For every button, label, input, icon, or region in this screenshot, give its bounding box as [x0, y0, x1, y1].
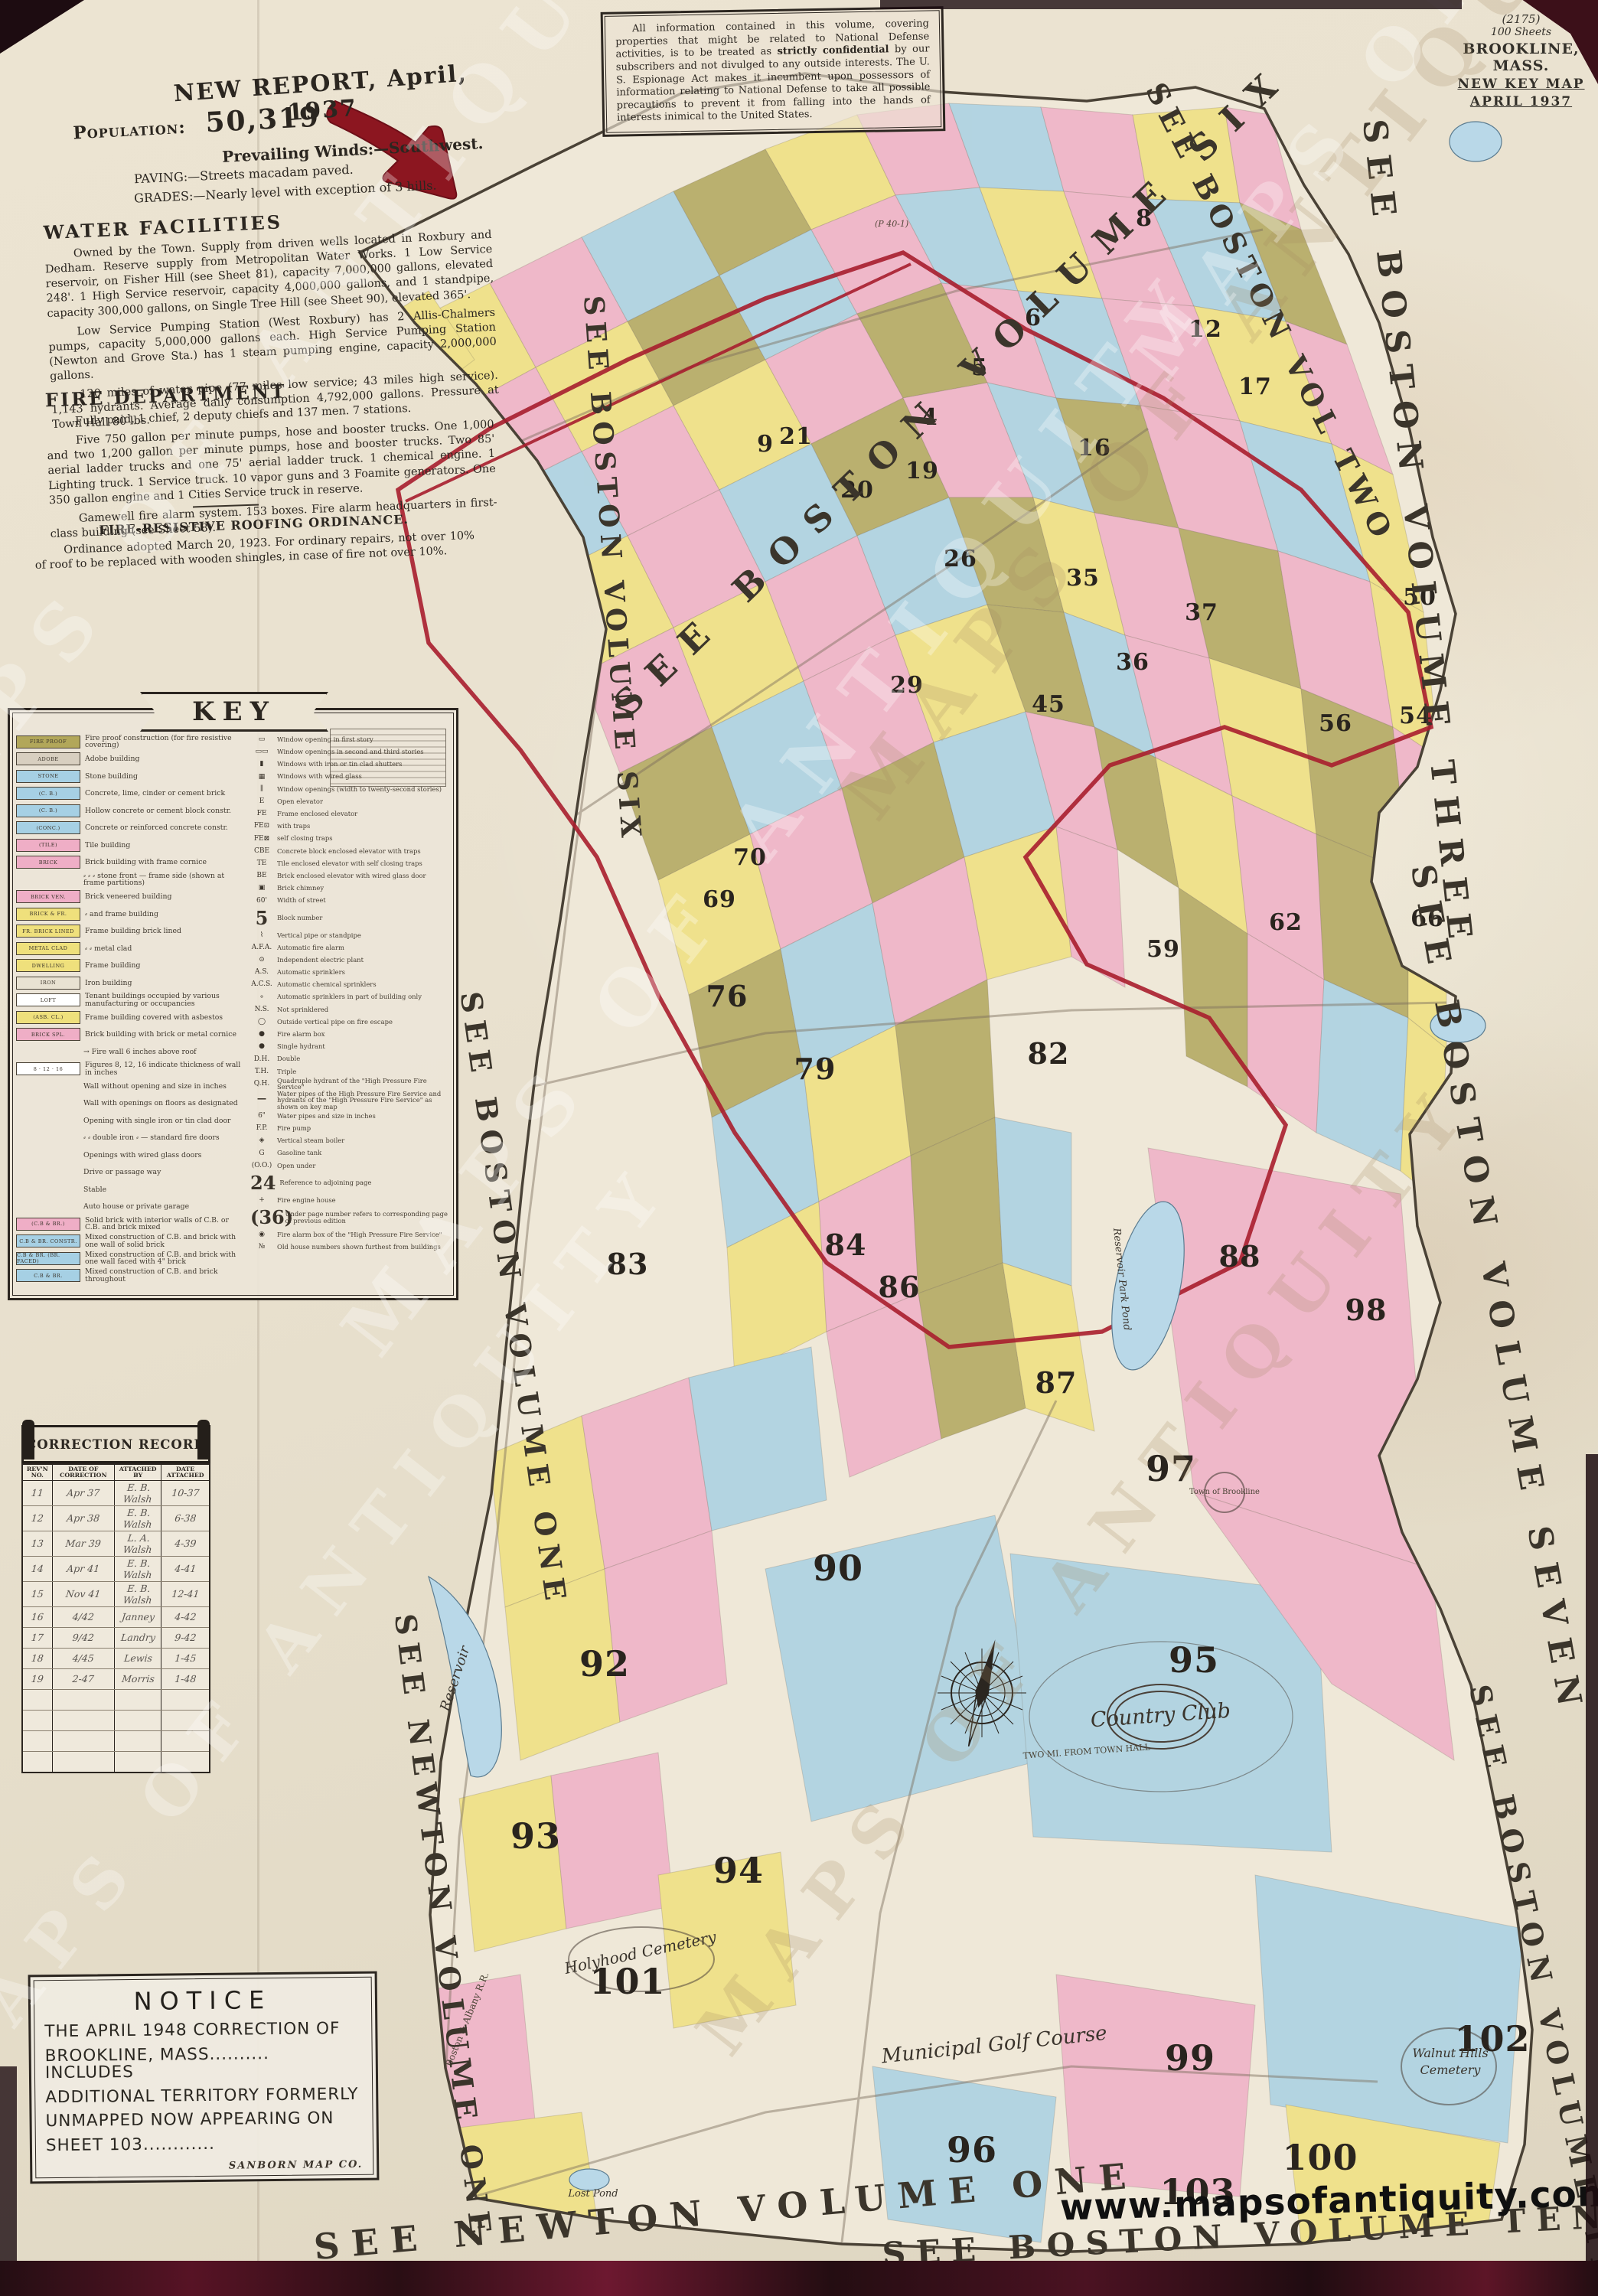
key-entry-label: Mixed construction of C.B. and brick thr… [85, 1268, 246, 1283]
key-symbol-entry: 6"Water pipes and size in inches [250, 1110, 448, 1122]
correction-cell: 12-41 [160, 1581, 211, 1606]
district-number: 37 [1185, 599, 1218, 626]
key-entry: (ASB. CL.)Frame building covered with as… [16, 1009, 246, 1026]
key-entry: BRICKBrick building with frame cornice [16, 854, 246, 872]
key-swatch: BRICK VEN. [16, 890, 80, 903]
key-entry: Stable [16, 1181, 246, 1199]
key-entry: Drive or passage way [16, 1164, 246, 1182]
key-right-column: ▭Window opening in first story▭▭Window o… [250, 733, 448, 1284]
correction-cell [51, 1710, 116, 1730]
key-symbol-entry: ●Fire alarm box [250, 1028, 448, 1040]
notice-line: SHEET 103............ [46, 2135, 363, 2155]
key-symbol-label: Brick chimney [277, 885, 324, 891]
key-swatch: BRICK & FR. [16, 908, 80, 921]
key-symbol-label: Width of street [277, 897, 326, 903]
correction-row: 12Apr 38E. B. Walsh6-38 [22, 1505, 210, 1531]
confidential-notice-text: All information contained in this volume… [615, 18, 931, 125]
key-symbol-icon: ● [250, 1030, 273, 1038]
key-swatch [16, 874, 79, 885]
key-title: KEY [140, 692, 328, 732]
key-symbol-entry: ◯Outside vertical pipe on fire escape [250, 1016, 448, 1028]
key-symbol-label: with traps [277, 823, 310, 829]
key-entry-label: Iron building [85, 980, 132, 987]
key-symbol-entry: (36)Under page number refers to correspo… [250, 1206, 448, 1228]
correction-cell: 4-42 [160, 1606, 210, 1627]
correction-cell: 1-45 [160, 1648, 210, 1668]
key-symbol-icon: FE⊠ [250, 835, 273, 843]
key-symbol-icon: 5 [250, 907, 273, 929]
correction-column-header: REV'N NO. [22, 1464, 52, 1480]
key-swatch: (C.B & BR.) [16, 1218, 80, 1231]
key-symbol-icon: ◈ [250, 1137, 273, 1144]
key-swatch [16, 1184, 79, 1195]
correction-row: 13Mar 39L. A. Walsh4-39 [22, 1531, 210, 1556]
key-swatch: FR. BRICK LINED [16, 925, 80, 938]
key-symbol-label: Gasoline tank [277, 1150, 321, 1156]
key-entry-label: Frame building covered with asbestos [85, 1014, 223, 1021]
key-entry-label: Tenant buildings occupied by various man… [85, 993, 246, 1007]
correction-row: 179/42Landry9-42 [22, 1627, 210, 1648]
key-entry-label: Adobe building [85, 755, 139, 762]
correction-cell: 19 [21, 1668, 54, 1689]
correction-cell: 4/45 [51, 1648, 116, 1668]
key-entry-label: ⸗ ⸗ ⸗ stone front — frame side (shown at… [83, 872, 246, 887]
key-symbol-icon: Q.H. [250, 1080, 273, 1088]
ornament-pillar-icon [22, 1420, 34, 1459]
correction-cell: 11 [21, 1480, 54, 1505]
key-swatch: (C. B.) [16, 804, 80, 817]
correction-record-header: CORRECTION RECORD [21, 1425, 210, 1463]
key-swatch: ADOBE [16, 752, 80, 765]
key-symbol-label: Vertical pipe or standpipe [277, 932, 361, 938]
key-symbol-label: Quadruple hydrant of the "High Pressure … [277, 1078, 448, 1091]
key-entry: FIRE PROOFFire proof construction (for f… [16, 733, 246, 751]
key-entry: C.B & BR. CONSTR.Mixed construction of C… [16, 1233, 246, 1251]
key-entry: DWELLINGFrame building [16, 957, 246, 975]
key-symbol-entry: Q.H.Quadruple hydrant of the "High Press… [250, 1078, 448, 1091]
district-number: 69 [703, 886, 736, 913]
correction-cell: 4-39 [160, 1531, 211, 1556]
key-symbol-icon: ∥ [250, 785, 273, 793]
key-symbol-label: Water pipes of the High Pressure Fire Se… [277, 1091, 448, 1110]
correction-cell: 6-38 [160, 1505, 211, 1531]
correction-cell: E. B. Walsh [113, 1581, 163, 1606]
correction-cell: 16 [21, 1606, 54, 1627]
key-symbol-icon: ◉ [250, 1231, 273, 1238]
correction-cell: Mar 39 [51, 1531, 116, 1556]
key-entry-label: Fire proof construction (for fire resist… [85, 735, 246, 749]
correction-cell: 9-42 [160, 1627, 210, 1648]
map-label: Walnut Hills [1412, 2046, 1488, 2060]
correction-cell: 10-37 [160, 1480, 211, 1505]
key-symbol-label: self closing traps [277, 835, 333, 841]
key-entry-label: Opening with single iron or tin clad doo… [83, 1117, 230, 1124]
correction-cell: Apr 38 [51, 1505, 116, 1531]
correction-cell [21, 1751, 54, 1773]
key-symbol-label: Open under [277, 1163, 315, 1169]
key-entry-label: ⸗ ⸗ double iron ⸗ — standard fire doors [83, 1134, 220, 1141]
correction-record-table: REV'N NO.DATE OF CORRECTIONATTACHED BYDA… [21, 1463, 210, 1773]
key-swatch [16, 1046, 79, 1058]
key-entry-label: Figures 8, 12, 16 indicate thickness of … [85, 1062, 246, 1076]
correction-cell: L. A. Walsh [113, 1531, 163, 1556]
key-swatch: (CONC.) [16, 821, 80, 834]
key-symbol-label: Reference to adjoining page [279, 1179, 371, 1186]
correction-cell: 12 [21, 1505, 54, 1531]
correction-cell: 4-41 [160, 1556, 211, 1581]
notice-line: THE APRIL 1948 CORRECTION OF [44, 2020, 361, 2041]
key-symbol-label: Outside vertical pipe on fire escape [277, 1019, 393, 1025]
key-symbol-icon: ⚬ [250, 993, 273, 1001]
correction-cell: 1-48 [160, 1668, 210, 1689]
key-entry-label: → Fire wall 6 inches above roof [83, 1049, 197, 1055]
correction-cell [113, 1710, 162, 1730]
key-symbol-entry: 5Block number [250, 907, 448, 929]
confidential-notice-box: All information contained in this volume… [601, 6, 946, 137]
district-number: 35 [1066, 565, 1100, 592]
key-symbol-icon: BE [250, 872, 273, 879]
key-entry-label: Mixed construction of C.B. and brick wit… [85, 1251, 246, 1266]
key-symbol-icon: G [250, 1150, 273, 1157]
fire-para: Five 750 gallon per minute pumps, hose a… [47, 418, 497, 508]
key-symbol-entry: ⊙Independent electric plant [250, 954, 448, 966]
correction-cell [160, 1710, 210, 1730]
district-number: 79 [794, 1052, 837, 1086]
key-swatch [16, 1081, 79, 1092]
key-symbol-icon: № [250, 1243, 273, 1251]
key-entry: STONEStone building [16, 768, 246, 785]
key-symbol-entry: ⚬Automatic sprinklers in part of buildin… [250, 991, 448, 1003]
key-symbol-label: Brick enclosed elevator with wired glass… [277, 872, 426, 879]
key-entry-label: Brick building with frame cornice [85, 859, 207, 866]
key-symbol-icon: ▭▭ [250, 748, 273, 755]
key-symbol-label: Block number [277, 915, 322, 921]
district-number: 16 [1078, 435, 1111, 461]
key-symbol-label: Vertical steam boiler [277, 1137, 344, 1143]
key-symbol-entry: ◉Fire alarm box of the "High Pressure Fi… [250, 1228, 448, 1241]
key-entry-label: Auto house or private garage [83, 1203, 189, 1210]
district-number: 95 [1169, 1639, 1219, 1681]
district-number: 45 [1032, 691, 1065, 718]
key-symbol-icon: CBE [250, 847, 273, 855]
key-symbol-entry: F.P.Fire pump [250, 1122, 448, 1134]
population-value: 50,319 [204, 101, 321, 139]
key-symbol-label: Not sprinklered [277, 1006, 328, 1013]
key-entry: ⸗ ⸗ double iron ⸗ — standard fire doors [16, 1130, 246, 1147]
key-entry-label: ⸗ ⸗ metal clad [85, 945, 132, 952]
sheet-count: 100 Sheets [1450, 26, 1592, 38]
key-symbol-icon: ⌇ [250, 931, 273, 939]
district-number: 26 [944, 546, 977, 572]
district-number: 96 [947, 2129, 997, 2170]
key-entry-label: Openings with wired glass doors [83, 1152, 201, 1159]
district-number: 98 [1345, 1293, 1388, 1327]
key-entry-label: Hollow concrete or cement block constr. [85, 807, 231, 814]
key-symbol-label: Under page number refers to correspondin… [285, 1211, 448, 1224]
key-swatch: C.B & BR. [16, 1269, 80, 1282]
key-entry: Opening with single iron or tin clad doo… [16, 1112, 246, 1130]
map-label: Town of Brookline [1189, 1488, 1260, 1496]
key-symbol-entry: (O.O.)Open under [250, 1159, 448, 1172]
key-swatch: C.B & BR. (BR. FACED) [16, 1252, 80, 1265]
key-symbol-entry: A.S.Automatic sprinklers [250, 966, 448, 978]
key-swatch [16, 1132, 79, 1143]
key-swatch: BRICK SPL. [16, 1028, 80, 1041]
key-entry: ADOBEAdobe building [16, 751, 246, 768]
key-symbol-entry: FE⊠self closing traps [250, 833, 448, 845]
key-symbol-entry: T.H.Triple [250, 1065, 448, 1078]
correction-row: 11Apr 37E. B. Walsh10-37 [22, 1480, 210, 1505]
district-number: 87 [1035, 1365, 1078, 1400]
map-key: KEY FIRE PROOFFire proof construction (f… [8, 708, 458, 1300]
key-symbol-label: Fire pump [277, 1125, 311, 1131]
correction-cell [51, 1730, 116, 1751]
correction-row [22, 1689, 210, 1710]
district-number: 19 [905, 458, 939, 484]
key-symbol-label: Water pipes and size in inches [277, 1113, 376, 1119]
sheet-info: (2175) 100 Sheets BROOKLINE, MASS. NEW K… [1450, 12, 1592, 109]
key-entry: ⸗ ⸗ ⸗ stone front — frame side (shown at… [16, 871, 246, 889]
key-entry: METAL CLAD⸗ ⸗ metal clad [16, 940, 246, 957]
district-number: 94 [713, 1850, 764, 1891]
plate-note: (P 40-1) [875, 219, 908, 229]
district-number: 76 [706, 979, 748, 1013]
key-entry: (C. B.)Concrete, lime, cinder or cement … [16, 785, 246, 803]
key-symbol-entry: ▣Brick chimney [250, 882, 448, 894]
map-type: NEW KEY MAP [1450, 77, 1592, 92]
key-swatch [16, 1115, 79, 1127]
district-number: 17 [1238, 373, 1272, 400]
key-symbol-label: Tile enclosed elevator with self closing… [277, 860, 422, 866]
key-swatch: (ASB. CL.) [16, 1011, 80, 1024]
correction-row: 164/42Janney4-42 [22, 1606, 210, 1627]
key-symbol-icon: FE⊡ [250, 822, 273, 830]
key-symbol-label: Triple [277, 1068, 296, 1075]
key-symbol-entry: A.F.A.Automatic fire alarm [250, 941, 448, 954]
key-entry: BRICK & FR.⸗ and frame building [16, 905, 246, 923]
key-entry: C.B & BR.Mixed construction of C.B. and … [16, 1267, 246, 1285]
correction-cell [51, 1751, 116, 1773]
key-symbol-label: Old house numbers shown furthest from bu… [277, 1244, 441, 1250]
key-symbol-entry: TETile enclosed elevator with self closi… [250, 857, 448, 869]
key-entry-label: Wall without opening and size in inches [83, 1083, 227, 1090]
key-entry-label: Drive or passage way [83, 1169, 161, 1176]
key-entry: Wall without opening and size in inches [16, 1078, 246, 1095]
correction-cell: 9/42 [51, 1627, 116, 1648]
key-symbol-entry: FEFrame enclosed elevator [250, 807, 448, 820]
key-entry-label: Solid brick with interior walls of C.B. … [85, 1217, 246, 1231]
key-entry: (CONC.)Concrete or reinforced concrete c… [16, 820, 246, 837]
key-symbol-entry: CBEConcrete block enclosed elevator with… [250, 845, 448, 857]
key-symbol-label: Automatic chemical sprinklers [277, 981, 377, 987]
correction-cell: E. B. Walsh [113, 1556, 163, 1581]
district-number: 93 [510, 1815, 561, 1857]
key-swatch [16, 1166, 79, 1178]
correction-cell [113, 1730, 162, 1751]
key-swatch [16, 1150, 79, 1161]
correction-cell: Apr 41 [51, 1556, 116, 1581]
key-symbol-label: Open elevator [277, 798, 323, 804]
district-number: 99 [1165, 2037, 1215, 2079]
key-entry-label: Frame building [85, 962, 140, 969]
key-entry-label: Brick building with brick or metal corni… [85, 1031, 236, 1038]
key-symbol-entry: ◈Vertical steam boiler [250, 1134, 448, 1146]
notice-signature: SANBORN MAP CO. [46, 2159, 363, 2174]
correction-row [22, 1710, 210, 1730]
district-number: 21 [779, 423, 813, 450]
district-number: 36 [1116, 649, 1150, 676]
district-number: 83 [607, 1247, 649, 1281]
key-symbol-icon: ⊙ [250, 956, 273, 964]
correction-cell: E. B. Walsh [113, 1480, 163, 1505]
key-entry: IRONIron building [16, 974, 246, 992]
key-symbol-label: Automatic sprinklers in part of building… [277, 993, 422, 1000]
district-number: 90 [813, 1548, 863, 1589]
notice-line: UNMAPPED NOW APPEARING ON [45, 2110, 362, 2131]
correction-cell: Lewis [113, 1648, 162, 1668]
key-symbol-entry: 60'Width of street [250, 894, 448, 906]
key-swatch: METAL CLAD [16, 942, 80, 955]
key-symbol-entry: GGasoline tank [250, 1146, 448, 1159]
notice-line: BROOKLINE, MASS.......... INCLUDES [45, 2044, 362, 2082]
correction-cell: Landry [113, 1627, 162, 1648]
correction-cell: Nov 41 [51, 1581, 116, 1606]
key-symbol-icon: ━━ [250, 1096, 273, 1104]
correction-cell: Apr 37 [51, 1480, 116, 1505]
key-symbol-entry: A.C.S.Automatic chemical sprinklers [250, 978, 448, 990]
notice-box: NOTICE THE APRIL 1948 CORRECTION OFBROOK… [28, 1971, 380, 2184]
notice-title: NOTICE [44, 1985, 361, 2017]
key-symbol-label: Automatic sprinklers [277, 969, 345, 975]
correction-cell [113, 1751, 162, 1773]
correction-cell: 2-47 [51, 1668, 116, 1689]
population-label: Population: [73, 117, 187, 144]
key-left-column: FIRE PROOFFire proof construction (for f… [16, 733, 246, 1284]
key-symbol-entry: ━━Water pipes of the High Pressure Fire … [250, 1091, 448, 1110]
correction-cell: 13 [21, 1531, 54, 1556]
key-swatch: IRON [16, 977, 80, 990]
key-symbol-icon: 24 [250, 1172, 276, 1194]
key-swatch: C.B & BR. CONSTR. [16, 1234, 80, 1247]
key-symbol-icon: + [250, 1196, 273, 1204]
correction-cell: Janney [113, 1606, 162, 1627]
key-entry-label: Tile building [85, 842, 130, 849]
key-symbol-entry: ●Single hydrant [250, 1040, 448, 1052]
key-symbol-label: Fire alarm box of the "High Pressure Fir… [277, 1231, 442, 1238]
key-symbol-icon: A.F.A. [250, 944, 273, 951]
key-symbol-label: Single hydrant [277, 1043, 325, 1049]
key-symbol-entry: EOpen elevator [250, 795, 448, 807]
key-swatch: DWELLING [16, 959, 80, 972]
key-symbol-label: Automatic fire alarm [277, 944, 344, 951]
antique-map-photo: 4568912161719202126293536374550545659626… [0, 0, 1598, 2296]
notice-line: ADDITIONAL TERRITORY FORMERLY [45, 2086, 362, 2107]
key-symbol-icon: (36) [250, 1206, 281, 1228]
district-number: 59 [1146, 936, 1180, 963]
plate-number: (2175) [1450, 12, 1592, 26]
key-symbol-icon: ▣ [250, 884, 273, 892]
key-symbol-icon: FE [250, 810, 273, 817]
key-entry-label: Concrete or reinforced concrete constr. [85, 824, 228, 831]
key-entry: (TILE)Tile building [16, 837, 246, 854]
district-number: 84 [825, 1228, 867, 1262]
key-entry: Auto house or private garage [16, 1199, 246, 1216]
key-symbol-label: Fire alarm box [277, 1031, 325, 1037]
key-symbol-icon: 60' [250, 897, 273, 905]
correction-column-header: DATE OF CORRECTION [52, 1464, 114, 1480]
correction-column-header: DATE ATTACHED [161, 1464, 210, 1480]
key-entry-label: Mixed construction of C.B. and brick wit… [85, 1234, 246, 1248]
key-swatch: STONE [16, 770, 80, 783]
key-symbol-icon: (O.O.) [250, 1162, 273, 1169]
key-symbol-icon: A.S. [250, 968, 273, 976]
correction-cell [113, 1689, 162, 1710]
key-inset-note [330, 729, 446, 787]
key-symbol-icon: ▮ [250, 760, 273, 768]
district-number: 82 [1028, 1036, 1070, 1071]
key-symbol-icon: F.P. [250, 1124, 273, 1132]
key-symbol-label: Independent electric plant [277, 957, 364, 963]
key-swatch: 8 · 12 · 16 [16, 1062, 80, 1075]
map-date: APRIL 1937 [1450, 94, 1592, 109]
correction-cell [21, 1730, 54, 1751]
key-symbol-entry: BEBrick enclosed elevator with wired gla… [250, 869, 448, 882]
city-name: BROOKLINE, MASS. [1450, 41, 1592, 74]
key-symbol-icon: ◯ [250, 1018, 273, 1026]
key-symbol-label: Double [277, 1055, 300, 1062]
key-swatch: LOFT [16, 993, 80, 1006]
correction-cell [160, 1689, 210, 1710]
district-number: 100 [1282, 2137, 1358, 2178]
correction-cell: 15 [21, 1581, 54, 1606]
key-symbol-icon: TE [250, 859, 273, 867]
key-swatch [16, 1201, 79, 1212]
key-entry: LOFTTenant buildings occupied by various… [16, 992, 246, 1009]
key-swatch: (TILE) [16, 839, 80, 852]
correction-cell [51, 1689, 116, 1710]
key-entry-label: Frame building brick lined [85, 928, 181, 934]
correction-column-header: ATTACHED BY [115, 1464, 161, 1480]
key-symbol-icon: N.S. [250, 1006, 273, 1013]
district-number: 29 [890, 672, 924, 699]
correction-row: 192-47Morris1-48 [22, 1668, 210, 1689]
key-entry: BRICK SPL.Brick building with brick or m… [16, 1026, 246, 1044]
key-swatch [16, 1097, 79, 1109]
district-number: 86 [879, 1270, 921, 1304]
correction-cell [21, 1689, 54, 1710]
district-number: 56 [1319, 710, 1352, 737]
correction-record: CORRECTION RECORD REV'N NO.DATE OF CORRE… [21, 1425, 210, 1773]
key-entry: Openings with wired glass doors [16, 1146, 246, 1164]
key-symbol-icon: A.C.S. [250, 980, 273, 988]
key-entry-label: Concrete, lime, cinder or cement brick [85, 790, 225, 797]
key-symbol-icon: ▦ [250, 773, 273, 781]
district-number: 92 [579, 1643, 630, 1684]
key-symbol-label: Frame enclosed elevator [277, 810, 357, 817]
correction-cell: Morris [113, 1668, 162, 1689]
correction-cell: E. B. Walsh [113, 1505, 163, 1531]
water-para: Owned by the Town. Supply from driven we… [44, 228, 495, 321]
district-number: 70 [733, 844, 767, 871]
key-entry: BRICK VEN.Brick veneered building [16, 889, 246, 906]
correction-row: 14Apr 41E. B. Walsh4-41 [22, 1556, 210, 1581]
district-number: 88 [1219, 1239, 1261, 1274]
key-entry-label: Stable [83, 1186, 106, 1193]
correction-row: 184/45Lewis1-45 [22, 1648, 210, 1668]
correction-cell: 18 [21, 1648, 54, 1668]
key-symbol-icon: E [250, 797, 273, 805]
correction-cell [21, 1710, 54, 1730]
